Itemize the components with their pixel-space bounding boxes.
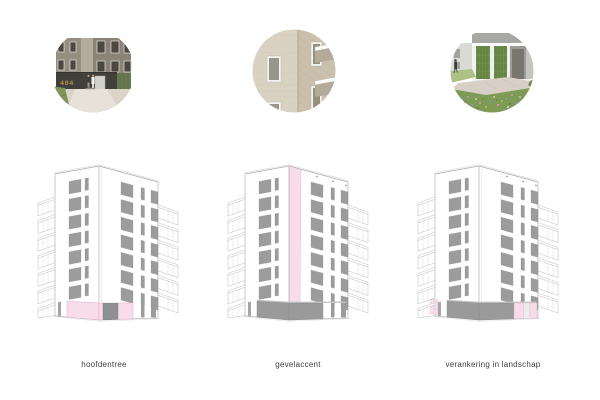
window — [521, 275, 525, 288]
landscape-photo-circle — [450, 29, 534, 113]
window — [69, 232, 81, 247]
window — [449, 214, 461, 229]
window — [521, 205, 525, 218]
window — [449, 285, 461, 300]
balcony-left — [228, 285, 245, 293]
facade-dot — [316, 176, 318, 178]
window — [449, 232, 461, 247]
window — [341, 243, 348, 257]
balcony-left — [228, 250, 245, 258]
plinth-window — [58, 302, 61, 316]
window — [259, 267, 271, 282]
window — [331, 293, 335, 306]
window — [69, 267, 81, 282]
window — [259, 214, 271, 229]
balcony-left — [418, 197, 435, 205]
window — [259, 179, 271, 194]
window — [259, 232, 271, 247]
entrance-door — [103, 303, 118, 320]
entrance-plinth-left — [67, 301, 99, 320]
landscape-photo — [450, 29, 534, 113]
left-pink-strip — [435, 300, 438, 315]
building-drawing — [38, 165, 178, 322]
window — [521, 258, 525, 271]
plinth-right — [479, 303, 514, 320]
background-building — [450, 43, 472, 73]
facade-dot — [506, 176, 508, 178]
facade-dot — [522, 181, 524, 183]
window — [275, 248, 279, 261]
caption-hoofdentree: hoofdentree — [4, 360, 204, 369]
window — [275, 231, 279, 244]
facade-photo — [252, 29, 336, 113]
plinth-window — [331, 305, 335, 318]
plinth-window — [248, 302, 251, 316]
window — [141, 258, 145, 271]
window — [85, 178, 89, 191]
facade-accent-stripe — [290, 166, 301, 303]
entrance-door — [95, 76, 105, 90]
window — [465, 284, 469, 297]
balcony-left — [38, 215, 55, 223]
balcony-left — [418, 232, 435, 240]
window — [85, 266, 89, 279]
plinth-window — [438, 302, 441, 316]
window — [85, 248, 89, 261]
caption-gevelaccent: gevelaccent — [198, 360, 398, 369]
window — [531, 190, 538, 204]
window — [259, 250, 271, 265]
window — [341, 278, 348, 292]
balcony-left — [38, 197, 55, 205]
window — [465, 196, 469, 209]
window — [341, 208, 348, 222]
window — [331, 187, 335, 200]
window — [449, 179, 461, 194]
entrance-photo: 484 — [51, 29, 135, 113]
facade-dot — [345, 185, 347, 187]
window — [331, 205, 335, 218]
window — [275, 284, 279, 297]
window — [531, 261, 538, 275]
window — [275, 266, 279, 279]
facade-pilaster — [81, 38, 93, 75]
window — [449, 267, 461, 282]
window — [141, 223, 145, 236]
window — [259, 197, 271, 212]
window — [465, 213, 469, 226]
window — [141, 275, 145, 288]
plinth-light-panel — [524, 303, 531, 318]
plinth-pink-panel — [530, 303, 537, 318]
window — [465, 266, 469, 279]
window — [151, 261, 158, 275]
window — [69, 214, 81, 229]
plinth-window — [341, 305, 346, 317]
window — [151, 278, 158, 292]
window — [151, 190, 158, 204]
balcony-left — [228, 215, 245, 223]
window — [141, 293, 145, 306]
window — [141, 187, 145, 200]
window — [85, 196, 89, 209]
axonometric-drawing-hoofdentree — [25, 152, 195, 342]
plinth-window — [141, 305, 145, 318]
window — [275, 213, 279, 226]
balcony-left — [38, 267, 55, 275]
window — [141, 205, 145, 218]
plinth-window — [151, 305, 156, 317]
concept-diagram-slide: 484 — [0, 0, 600, 400]
window — [331, 240, 335, 253]
window — [275, 178, 279, 191]
window — [85, 284, 89, 297]
balcony-left — [418, 285, 435, 293]
window — [449, 197, 461, 212]
window — [85, 231, 89, 244]
balcony-left — [38, 250, 55, 258]
window — [69, 285, 81, 300]
window — [151, 225, 158, 239]
window — [151, 208, 158, 222]
entrance-number: 484 — [60, 80, 74, 87]
balcony-left — [228, 303, 245, 311]
axonometric-drawing-gevelaccent — [215, 152, 385, 342]
window — [341, 225, 348, 239]
window — [521, 240, 525, 253]
green-wall-panels — [476, 46, 510, 79]
facade-dot — [332, 181, 334, 183]
building-drawing — [418, 165, 558, 322]
window — [531, 208, 538, 222]
window — [341, 190, 348, 204]
window — [465, 231, 469, 244]
balcony-left — [418, 267, 435, 275]
window — [85, 213, 89, 226]
window — [69, 250, 81, 265]
window — [259, 285, 271, 300]
balcony-left — [38, 303, 55, 311]
balcony-left — [418, 215, 435, 223]
balcony-left — [228, 197, 245, 205]
axonometric-drawing-verankering — [405, 152, 575, 342]
window — [531, 278, 538, 292]
window — [531, 243, 538, 257]
window — [275, 196, 279, 209]
window — [465, 178, 469, 191]
balcony-left — [38, 285, 55, 293]
entrance-photo-circle: 484 — [51, 29, 135, 113]
facade-photo-circle — [252, 29, 336, 113]
window — [341, 261, 348, 275]
window — [331, 223, 335, 236]
plinth-left — [447, 301, 479, 320]
window — [151, 243, 158, 257]
facade-dot — [535, 185, 537, 187]
window — [531, 225, 538, 239]
building-drawing — [228, 165, 368, 322]
balcony-left — [228, 232, 245, 240]
window — [521, 223, 525, 236]
plinth-right — [289, 303, 323, 320]
window — [69, 179, 81, 194]
balcony-left — [38, 232, 55, 240]
window — [465, 248, 469, 261]
window — [449, 250, 461, 265]
caption-verankering: verankering in landschap — [393, 360, 593, 369]
window — [141, 240, 145, 253]
window — [521, 187, 525, 200]
window — [331, 258, 335, 271]
window — [69, 197, 81, 212]
window — [331, 275, 335, 288]
plinth-pink-panel — [514, 303, 524, 319]
balcony-left — [418, 250, 435, 258]
balcony-left — [228, 267, 245, 275]
plinth-left — [257, 301, 289, 320]
